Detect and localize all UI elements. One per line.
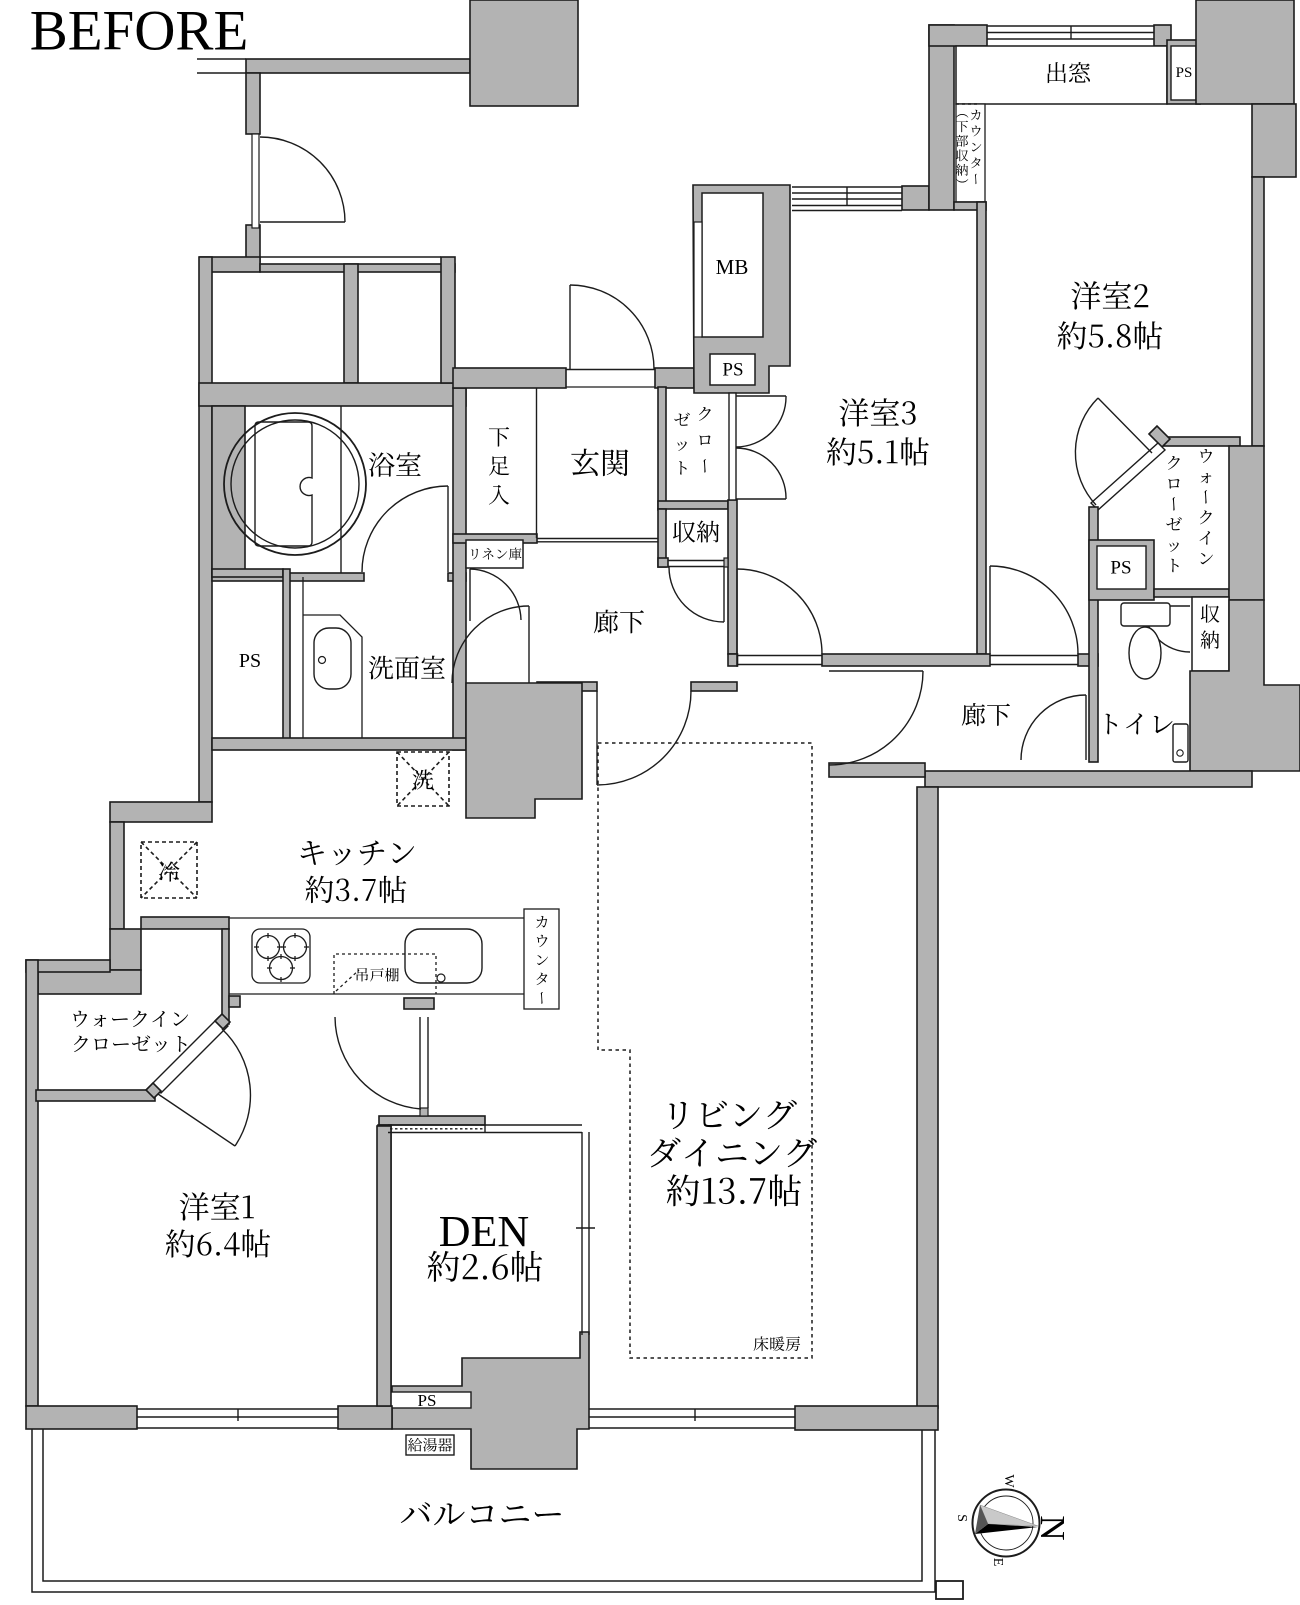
svg-text:PS: PS — [1176, 65, 1193, 81]
svg-text:PS: PS — [1110, 558, 1131, 579]
svg-text:PS: PS — [418, 1391, 437, 1410]
svg-text:DEN: DEN — [439, 1207, 529, 1256]
svg-text:W: W — [1001, 1474, 1016, 1488]
svg-text:MB: MB — [716, 255, 749, 279]
svg-text:PS: PS — [722, 360, 743, 381]
svg-text:N: N — [1033, 1515, 1072, 1540]
svg-text:S: S — [954, 1514, 969, 1522]
svg-text:PS: PS — [239, 650, 261, 672]
svg-text:BEFORE: BEFORE — [30, 0, 249, 62]
svg-text:E: E — [990, 1558, 1005, 1567]
